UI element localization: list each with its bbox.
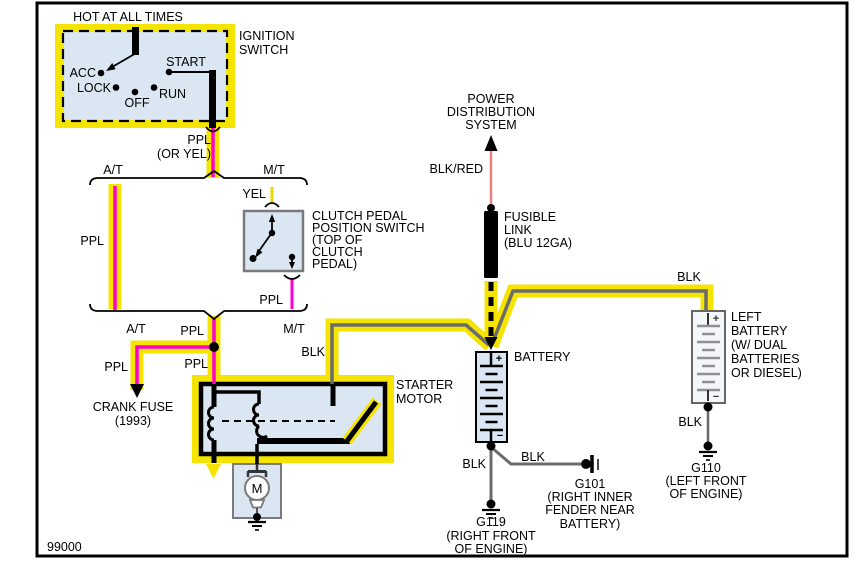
g101-label-3: FENDER NEAR	[545, 503, 635, 517]
battery-label: BATTERY	[514, 350, 571, 364]
battery-minus-sign: −	[497, 430, 503, 442]
left-battery-label-5: OR DIESEL)	[731, 366, 802, 380]
starter-blk-label: BLK	[301, 345, 325, 359]
wiring-diagram-page: HOT AT ALL TIMES IGNITION SWITCH ACC LOC…	[0, 0, 866, 584]
crank-branch-ppl-label: PPL	[104, 360, 128, 374]
split-top-at-label: A/T	[103, 163, 123, 177]
motor-ground-dot	[253, 513, 261, 521]
crank-fuse-label-2: (1993)	[115, 414, 151, 428]
ignition-output-bar	[209, 70, 216, 128]
yel-wire-label: YEL	[242, 187, 266, 201]
contact-dot-lock	[113, 84, 120, 91]
g119-label-1: G119	[476, 515, 506, 529]
battery-negative-junction-dot	[487, 442, 496, 451]
position-acc-label: ACC	[70, 66, 96, 80]
clutch-lower-contact-dot	[250, 255, 257, 262]
ignition-output-wire-label-2: (OR YEL)	[157, 147, 211, 161]
clutch-output-ppl-label: PPL	[259, 293, 283, 307]
split-bottom-mt-label: M/T	[283, 322, 305, 336]
g110-label-3: OF ENGINE)	[670, 487, 743, 501]
left-battery-plus-sign: +	[713, 313, 719, 325]
clutch-switch-label-5: PEDAL)	[312, 257, 357, 271]
g110-ground-dot	[704, 442, 713, 451]
left-battery-label-4: BATTERIES	[731, 352, 800, 366]
left-battery-minus-sign: −	[713, 391, 719, 403]
contact-dot-acc	[98, 70, 105, 77]
g110-label-1: G110	[691, 461, 721, 475]
pds-label-2: DISTRIBUTION	[447, 105, 535, 119]
fusible-link-label-1: FUSIBLE	[504, 210, 556, 224]
diagram-code: 99000	[47, 540, 82, 554]
position-lock-label: LOCK	[77, 81, 112, 95]
left-battery-blk-top-label: BLK	[677, 270, 701, 284]
ignition-output-wire-label-1: PPL	[187, 133, 211, 147]
starter-motor-label-1: STARTER	[396, 378, 453, 392]
left-battery-negative-junction-dot	[704, 403, 713, 412]
merge-ppl-label: PPL	[180, 324, 204, 338]
starter-circuit-diagram: HOT AT ALL TIMES IGNITION SWITCH ACC LOC…	[0, 0, 866, 584]
crank-fuse-label-1: CRANK FUSE	[93, 400, 174, 414]
junction-ppl-label: PPL	[184, 357, 208, 371]
motor-base	[250, 500, 264, 508]
ignition-switch-name-2: SWITCH	[239, 43, 288, 57]
fusible-link-label-3: (BLU 12GA)	[504, 236, 572, 250]
g110-label-2: (LEFT FRONT	[665, 474, 746, 488]
battery-plus-sign: +	[496, 353, 502, 365]
left-battery-label-1: LEFT	[731, 310, 762, 324]
g101-label-4: BATTERY)	[560, 517, 621, 531]
fusible-link-label-2: LINK	[504, 223, 532, 237]
left-battery-label-3: (W/ DUAL	[731, 338, 787, 352]
split-bottom-at-label: A/T	[126, 322, 146, 336]
pds-label-3: SYSTEM	[465, 118, 516, 132]
g119-blk-label: BLK	[462, 457, 486, 471]
g101-label-1: G101	[575, 477, 606, 491]
motor-letter: M	[252, 481, 263, 496]
position-start-label: START	[166, 55, 206, 69]
position-off-label: OFF	[125, 96, 150, 110]
blkred-wire-label: BLK/RED	[430, 162, 484, 176]
g119-label-3: OF ENGINE)	[455, 542, 528, 556]
pds-label-1: POWER	[467, 92, 514, 106]
starter-motor-label-2: MOTOR	[396, 392, 442, 406]
left-battery-blk-bottom-label: BLK	[678, 415, 702, 429]
at-branch-ppl-label: PPL	[80, 234, 104, 248]
g101-blk-label: BLK	[521, 450, 545, 464]
position-run-label: RUN	[159, 87, 186, 101]
g101-label-2: (RIGHT INNER	[547, 490, 632, 504]
left-battery-label-2: BATTERY	[731, 324, 788, 338]
split-top-mt-label: M/T	[263, 163, 285, 177]
contact-dot-run	[151, 84, 158, 91]
ignition-feed-bar	[132, 27, 139, 55]
g119-label-2: (RIGHT FRONT	[446, 529, 536, 543]
fusible-link-junction-dot	[487, 204, 495, 212]
junction-dot-ppl	[209, 342, 219, 352]
fusible-link-bar	[484, 211, 498, 278]
hot-at-all-times-label: HOT AT ALL TIMES	[73, 10, 183, 24]
contact-dot-off	[132, 89, 139, 96]
ignition-switch-name-1: IGNITION	[239, 29, 295, 43]
